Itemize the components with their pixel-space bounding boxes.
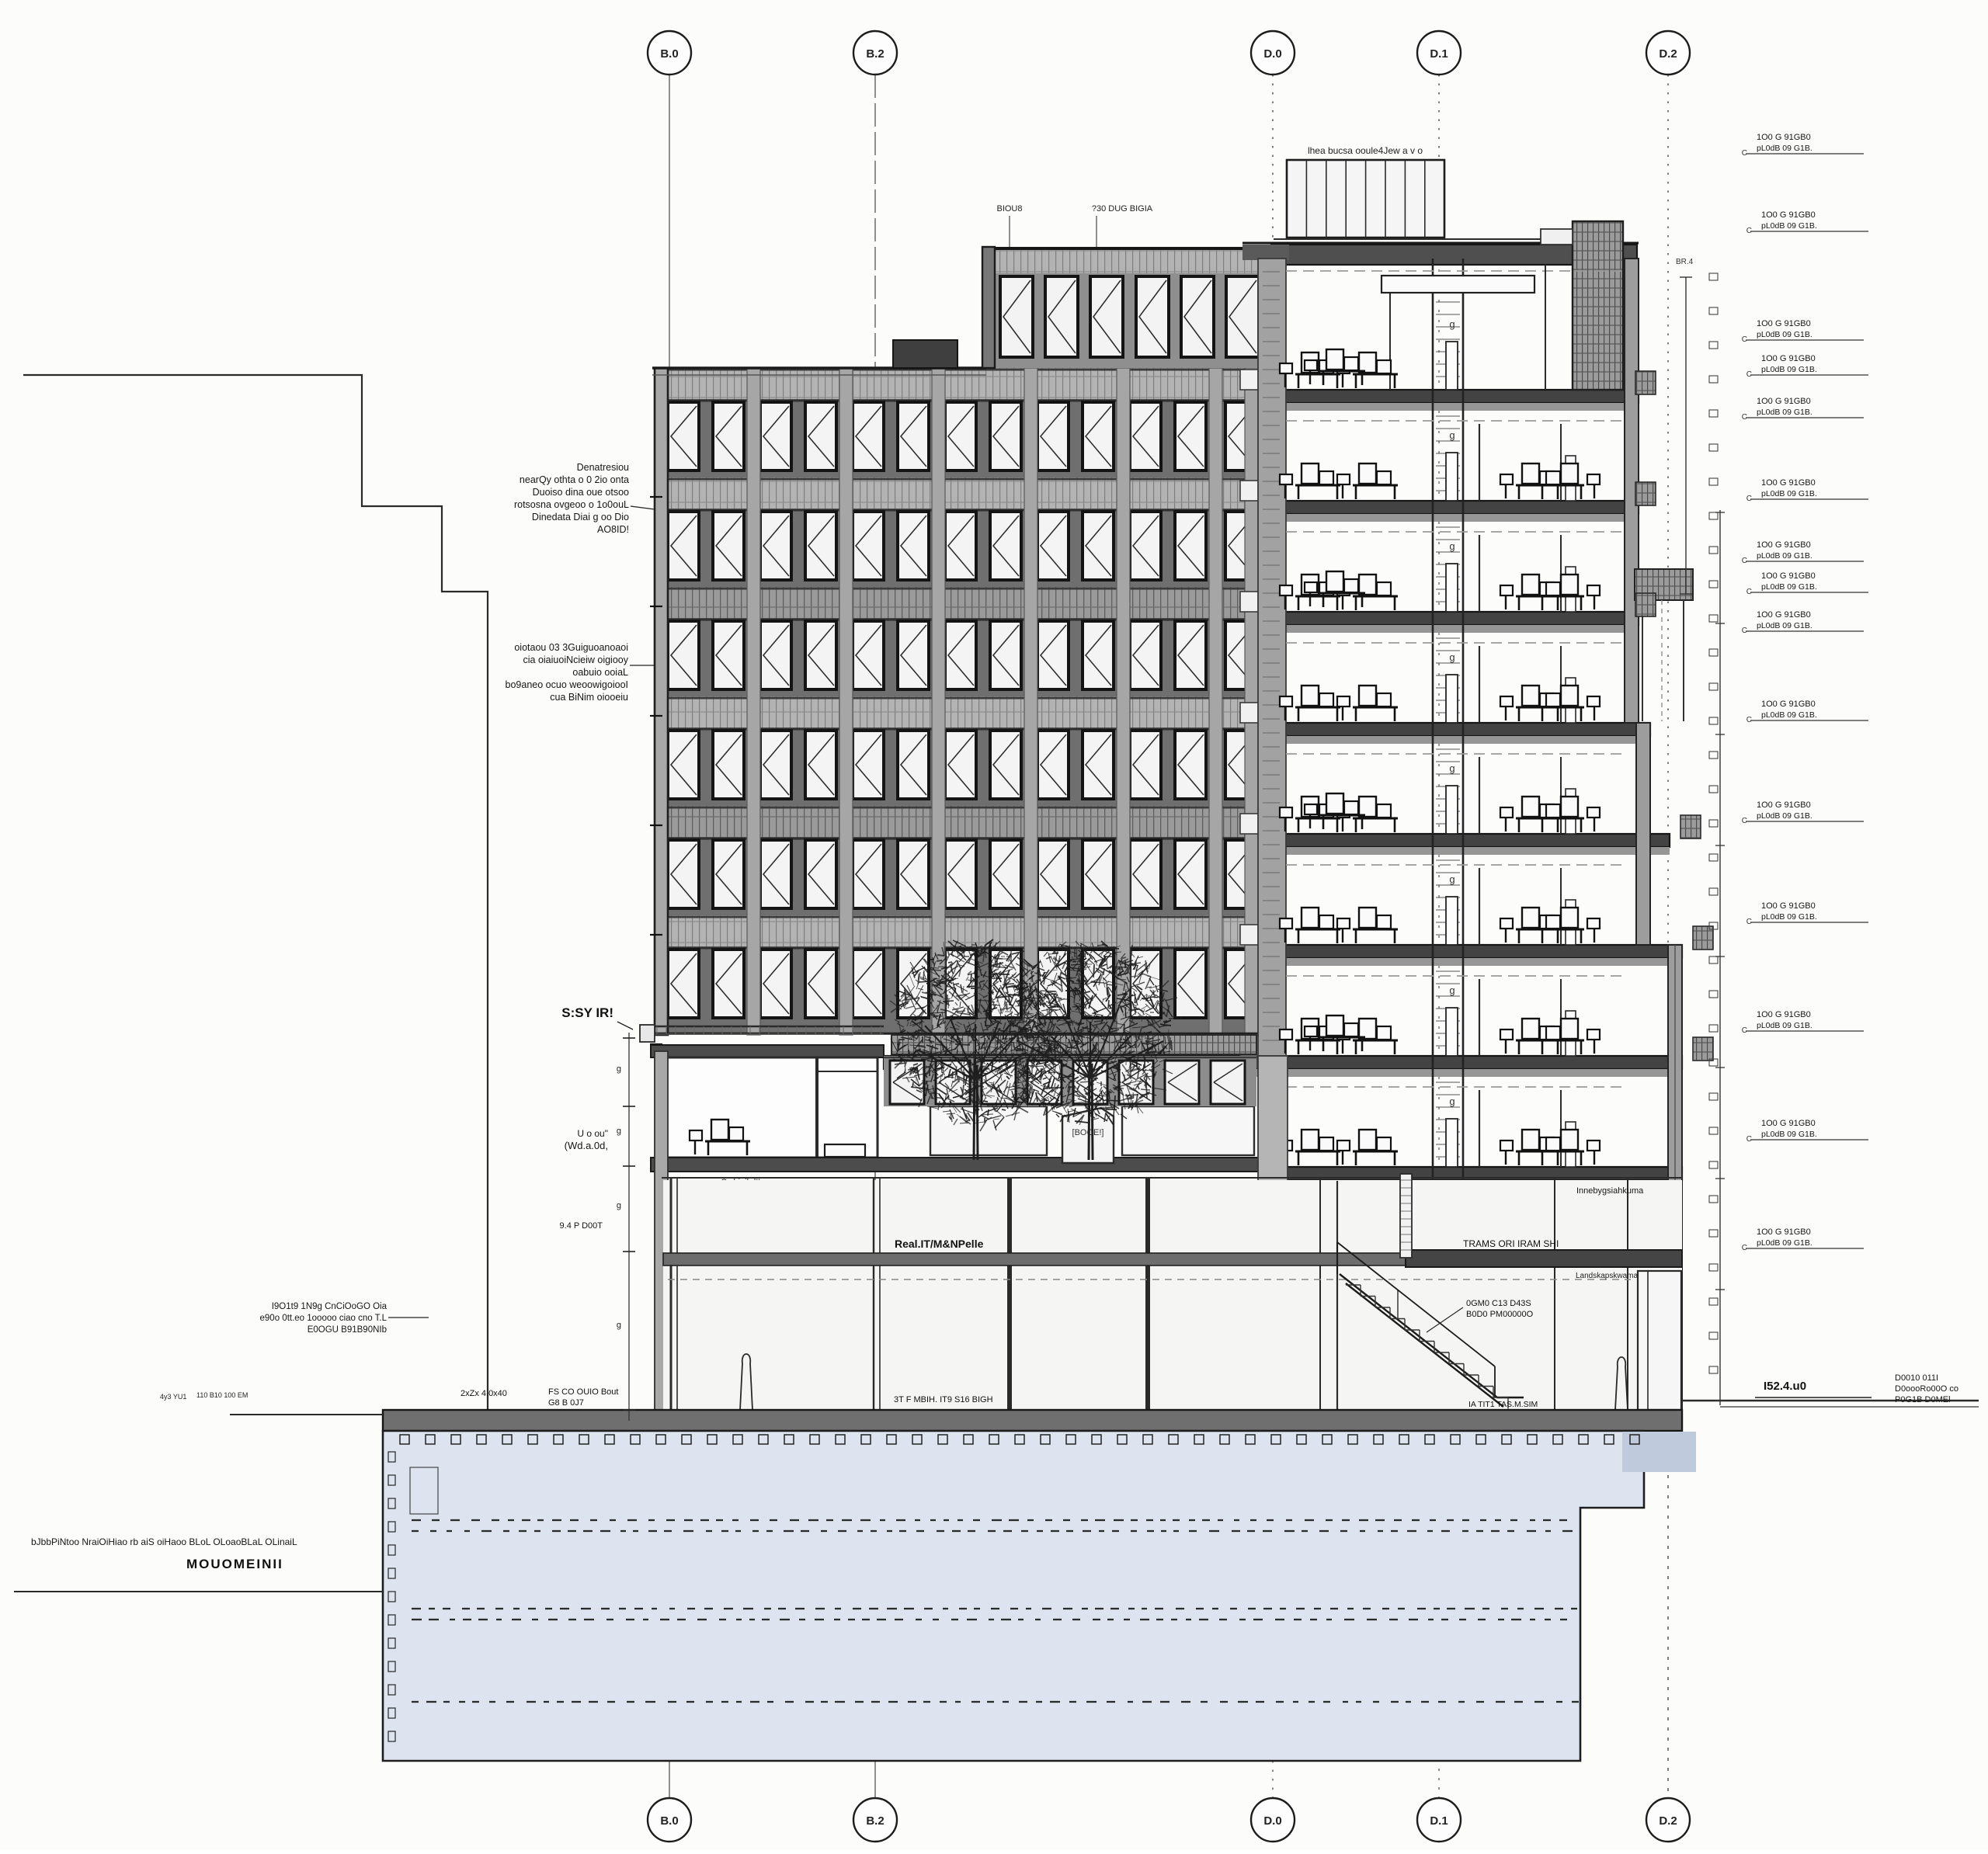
svg-text:pL0dB 09 G1B.: pL0dB 09 G1B. <box>1757 330 1812 339</box>
svg-text:g: g <box>1449 651 1455 663</box>
svg-text:C: C <box>1746 227 1752 235</box>
svg-text:pL0dB 09 G1B.: pL0dB 09 G1B. <box>1761 221 1817 231</box>
svg-text:1O0 G 91GB0: 1O0 G 91GB0 <box>1761 210 1816 220</box>
svg-text:g: g <box>1449 429 1455 441</box>
svg-text:110 B10 100 EM: 110 B10 100 EM <box>196 1391 248 1399</box>
svg-text:P0G1B D0MEl: P0G1B D0MEl <box>1895 1395 1951 1404</box>
svg-text:1O0 G 91GB0: 1O0 G 91GB0 <box>1757 1010 1811 1019</box>
svg-text:G8 B 0J7: G8 B 0J7 <box>548 1398 584 1408</box>
svg-text:C: C <box>1742 817 1747 825</box>
svg-text:1O0 G 91GB0: 1O0 G 91GB0 <box>1757 319 1811 328</box>
svg-text:D.0: D.0 <box>1263 47 1281 61</box>
svg-text:nearQy othta o 0 2io onta: nearQy othta o 0 2io onta <box>520 474 629 485</box>
svg-text:9.4 P D00T: 9.4 P D00T <box>560 1221 603 1231</box>
svg-text:B0D0 PM00000O: B0D0 PM00000O <box>1466 1310 1534 1319</box>
svg-text:D.1: D.1 <box>1430 1814 1448 1828</box>
svg-text:pL0dB 09 G1B.: pL0dB 09 G1B. <box>1757 408 1812 417</box>
svg-text:g: g <box>1449 873 1455 885</box>
svg-text:C: C <box>1742 627 1747 635</box>
svg-text:1O0 G 91GB0: 1O0 G 91GB0 <box>1757 397 1811 406</box>
svg-text:C: C <box>1746 370 1752 379</box>
svg-text:g: g <box>1449 984 1455 996</box>
svg-text:C: C <box>1742 149 1747 158</box>
svg-text:IA TIT1 TAS.M.SIM: IA TIT1 TAS.M.SIM <box>1468 1400 1538 1409</box>
svg-text:B.2: B.2 <box>866 47 884 61</box>
svg-text:g: g <box>1449 540 1455 552</box>
svg-text:C: C <box>1746 1135 1752 1144</box>
svg-text:D0010 011I: D0010 011I <box>1895 1373 1938 1383</box>
svg-text:oiotaou 03 3Guiguoanoaoi: oiotaou 03 3Guiguoanoaoi <box>514 642 628 653</box>
svg-text:g: g <box>1449 318 1455 330</box>
svg-text:pL0dB 09 G1B.: pL0dB 09 G1B. <box>1761 365 1817 374</box>
svg-text:pL0dB 09 G1B.: pL0dB 09 G1B. <box>1757 1021 1812 1030</box>
svg-text:pL0dB 09 G1B.: pL0dB 09 G1B. <box>1757 811 1812 821</box>
svg-text:pL0dB 09 G1B.: pL0dB 09 G1B. <box>1761 912 1817 922</box>
svg-text:S:SY IR!: S:SY IR! <box>561 1005 613 1020</box>
svg-text:pL0dB 09 G1B.: pL0dB 09 G1B. <box>1757 1238 1812 1248</box>
svg-text:TRAMS ORI IRAM SHI: TRAMS ORI IRAM SHI <box>1463 1238 1559 1249</box>
svg-text:C: C <box>1746 716 1752 724</box>
svg-text:Innebygsiahkuma: Innebygsiahkuma <box>1576 1186 1644 1196</box>
svg-text:D0oooRo00O co: D0oooRo00O co <box>1895 1384 1958 1394</box>
svg-text:1O0 G 91GB0: 1O0 G 91GB0 <box>1757 540 1811 550</box>
svg-text:BR.4: BR.4 <box>1676 258 1694 266</box>
svg-text:B.0: B.0 <box>660 47 678 61</box>
svg-text:1O0 G 91GB0: 1O0 G 91GB0 <box>1757 1227 1811 1237</box>
svg-text:C: C <box>1742 557 1747 565</box>
svg-text:C: C <box>1746 588 1752 596</box>
svg-text:1O0 G 91GB0: 1O0 G 91GB0 <box>1761 354 1816 363</box>
svg-text:g: g <box>617 1064 621 1074</box>
svg-text:1O0 G 91GB0: 1O0 G 91GB0 <box>1761 478 1816 488</box>
svg-text:e90o 0tt.eo 1ooooo ciao cno T.: e90o 0tt.eo 1ooooo ciao cno T.L <box>260 1314 388 1323</box>
svg-text:D.2: D.2 <box>1659 47 1677 61</box>
svg-text:0GM0 C13 D43S: 0GM0 C13 D43S <box>1466 1299 1531 1308</box>
svg-text:MOUOMEINII: MOUOMEINII <box>186 1557 283 1571</box>
svg-text:lhea bucsa ooule4Jew a v o: lhea bucsa ooule4Jew a v o <box>1308 145 1423 156</box>
svg-text:C: C <box>1742 413 1747 422</box>
svg-text:Denatresiou: Denatresiou <box>577 462 629 473</box>
svg-text:bo9aneo ocuo weoowigoiooI: bo9aneo ocuo weoowigoiooI <box>506 679 628 690</box>
svg-text:B.0: B.0 <box>660 1814 678 1828</box>
svg-text:Dinedata Diai g oo Dio: Dinedata Diai g oo Dio <box>532 512 629 523</box>
svg-text:C: C <box>1742 1026 1747 1035</box>
svg-text:4y3 YU1: 4y3 YU1 <box>160 1393 186 1401</box>
svg-text:Duoiso dina oue otsoo: Duoiso dina oue otsoo <box>533 487 629 498</box>
svg-text:BIOU8: BIOU8 <box>996 204 1022 214</box>
svg-text:D.2: D.2 <box>1659 1814 1677 1828</box>
svg-text:U o ou": U o ou" <box>577 1128 608 1139</box>
svg-text:C: C <box>1746 495 1752 503</box>
svg-text:cua BiNim oiooeiu: cua BiNim oiooeiu <box>550 692 628 703</box>
svg-text:I52.4.u0: I52.4.u0 <box>1764 1380 1806 1393</box>
svg-text:1O0 G 91GB0: 1O0 G 91GB0 <box>1757 800 1811 810</box>
svg-text:pL0dB 09 G1B.: pL0dB 09 G1B. <box>1761 1130 1817 1139</box>
svg-text:B.2: B.2 <box>866 1814 884 1828</box>
svg-text:(Wd.a.0d,: (Wd.a.0d, <box>565 1140 608 1151</box>
svg-text:I9O1t9 1N9g CnCiOoGO Oia: I9O1t9 1N9g CnCiOoGO Oia <box>272 1302 388 1311</box>
svg-text:E0OGU B91B90NIb: E0OGU B91B90NIb <box>308 1325 387 1335</box>
svg-text:cia oiaiuoiNcieiw oigiooy: cia oiaiuoiNcieiw oigiooy <box>523 654 629 665</box>
svg-text:oabuio ooiaL: oabuio ooiaL <box>572 667 628 678</box>
svg-text:AO8ID!: AO8ID! <box>597 524 629 535</box>
svg-text:2xZx 4.0x40: 2xZx 4.0x40 <box>461 1389 507 1398</box>
svg-text:1O0 G 91GB0: 1O0 G 91GB0 <box>1757 133 1811 142</box>
svg-text:bJbbPiNtoo NraiOiHiao rb aiS o: bJbbPiNtoo NraiOiHiao rb aiS oiHaoo BLoL… <box>31 1536 297 1547</box>
svg-text:C: C <box>1742 335 1747 344</box>
svg-text:g: g <box>617 1321 621 1330</box>
svg-text:1O0 G 91GB0: 1O0 G 91GB0 <box>1761 1119 1816 1128</box>
svg-text:D.0: D.0 <box>1263 1814 1281 1828</box>
svg-text:?30 DUG BIGIA: ?30 DUG BIGIA <box>1092 204 1153 214</box>
svg-text:Real.IT/M&NPelle: Real.IT/M&NPelle <box>895 1238 984 1250</box>
svg-text:3T F MBIH. IT9 S16 BIGH: 3T F MBIH. IT9 S16 BIGH <box>894 1395 993 1404</box>
svg-text:1O0 G 91GB0: 1O0 G 91GB0 <box>1761 700 1816 709</box>
svg-text:pL0dB 09 G1B.: pL0dB 09 G1B. <box>1757 551 1812 561</box>
svg-text:pL0dB 09 G1B.: pL0dB 09 G1B. <box>1757 621 1812 630</box>
svg-text:D.1: D.1 <box>1430 47 1448 61</box>
svg-text:Landskapskwama: Landskapskwama <box>1576 1272 1638 1280</box>
svg-text:g: g <box>617 1127 621 1136</box>
svg-text:pL0dB 09 G1B.: pL0dB 09 G1B. <box>1757 144 1812 153</box>
svg-text:C: C <box>1746 918 1752 926</box>
svg-text:g: g <box>617 1201 621 1210</box>
svg-text:g: g <box>1449 1095 1455 1107</box>
svg-text:1O0 G 91GB0: 1O0 G 91GB0 <box>1761 571 1816 581</box>
svg-text:FS CO OUIO Bout: FS CO OUIO Bout <box>548 1387 618 1397</box>
svg-text:1O0 G 91GB0: 1O0 G 91GB0 <box>1757 610 1811 620</box>
svg-text:rotsosna ovgeoo o 1o0ouL: rotsosna ovgeoo o 1o0ouL <box>514 499 629 510</box>
svg-text:pL0dB 09 G1B.: pL0dB 09 G1B. <box>1761 582 1817 592</box>
svg-text:1O0 G 91GB0: 1O0 G 91GB0 <box>1761 901 1816 911</box>
svg-text:pL0dB 09 G1B.: pL0dB 09 G1B. <box>1761 710 1817 720</box>
svg-text:g: g <box>1449 762 1455 774</box>
svg-text:pL0dB 09 G1B.: pL0dB 09 G1B. <box>1761 489 1817 498</box>
svg-text:C: C <box>1742 1244 1747 1252</box>
